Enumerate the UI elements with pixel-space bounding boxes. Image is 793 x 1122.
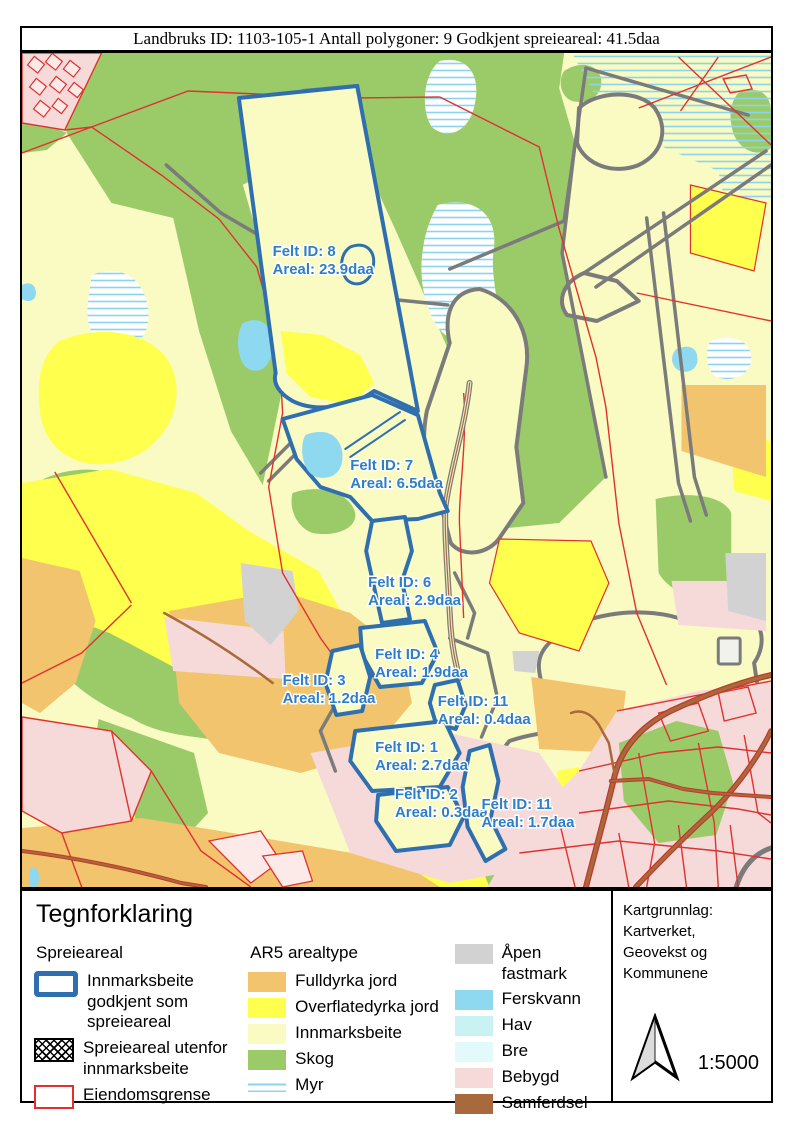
- legend-item-innmarksbeite: Innmarksbeite: [248, 1023, 440, 1044]
- legend-item-label: Eiendomsgrense: [83, 1085, 211, 1106]
- legend-title: Tegnforklaring: [36, 900, 599, 929]
- map-title-bar: Landbruks ID: 1103-105-1 Antall polygone…: [20, 26, 773, 52]
- north-arrow-icon: [629, 1013, 681, 1083]
- legend-item-label: Skog: [295, 1049, 334, 1070]
- legend-column-spreieareal: Spreieareal Innmarksbeite godkjent som s…: [34, 943, 234, 1119]
- legend-item-label: Hav: [502, 1015, 532, 1036]
- legend-item-label: Myr: [295, 1075, 323, 1096]
- legend-item-myr: Myr: [248, 1075, 440, 1096]
- crosshatch-swatch: [34, 1038, 74, 1062]
- map-svg: Felt ID: 8Areal: 23.9daa Felt ID: 7Areal…: [22, 53, 771, 887]
- legend-item-label: Bre: [502, 1041, 528, 1062]
- info-box: Kartgrunnlag: Kartverket, Geovekst og Ko…: [611, 889, 773, 1103]
- color-swatch: [455, 990, 493, 1010]
- legend-item-label: Ferskvann: [502, 989, 581, 1010]
- legend-item-utenfor: Spreieareal utenfor innmarksbeite: [34, 1038, 234, 1079]
- page: Landbruks ID: 1103-105-1 Antall polygone…: [0, 0, 793, 1122]
- legend-item-label: Åpen fastmark: [502, 943, 599, 984]
- map-canvas[interactable]: Felt ID: 8Areal: 23.9daa Felt ID: 7Areal…: [20, 51, 773, 889]
- legend-header-spreieareal: Spreieareal: [36, 943, 234, 963]
- legend-header-ar5: AR5 arealtype: [250, 943, 440, 963]
- color-swatch: [248, 1024, 286, 1044]
- color-swatch: [455, 1016, 493, 1036]
- legend-item-fastmark: Åpen fastmark: [455, 943, 599, 984]
- legend-item-overflatedyrka: Overflatedyrka jord: [248, 997, 440, 1018]
- legend-item-label: Fulldyrka jord: [295, 971, 397, 992]
- legend-item-hav: Hav: [455, 1015, 599, 1036]
- color-swatch: [248, 998, 286, 1018]
- legend-item-eiendomsgrense: Eiendomsgrense: [34, 1085, 234, 1109]
- legend-item-bre: Bre: [455, 1041, 599, 1062]
- color-swatch: [455, 1094, 493, 1114]
- color-swatch: [248, 1050, 286, 1070]
- legend-item-label: Innmarksbeite godkjent som spreieareal: [87, 971, 234, 1033]
- legend-item-label: Innmarksbeite: [295, 1023, 402, 1044]
- red-outline-swatch: [34, 1085, 74, 1109]
- color-swatch: [455, 1042, 493, 1062]
- myr-lines-swatch: [248, 1076, 286, 1096]
- legend-item-label: Overflatedyrka jord: [295, 997, 439, 1018]
- legend-item-samferdsel: Samferdsel: [455, 1093, 599, 1114]
- legend-item-fulldyrka: Fulldyrka jord: [248, 971, 440, 992]
- legend-item-label: Samferdsel: [502, 1093, 588, 1114]
- legend-item-label: Spreieareal utenfor innmarksbeite: [83, 1038, 234, 1079]
- legend: Tegnforklaring Spreieareal Innmarksbeite…: [20, 889, 613, 1103]
- attribution-text: Kartgrunnlag: Kartverket, Geovekst og Ko…: [623, 900, 761, 984]
- legend-item-bebygd: Bebygd: [455, 1067, 599, 1088]
- legend-item-ferskvann: Ferskvann: [455, 989, 599, 1010]
- blue-outline-swatch: [34, 971, 78, 997]
- scale-text: 1:5000: [698, 1052, 759, 1075]
- legend-item-label: Bebygd: [502, 1067, 560, 1088]
- color-swatch: [248, 972, 286, 992]
- legend-column-ar5: AR5 arealtype Fulldyrka jord Overflatedy…: [248, 943, 440, 1119]
- legend-item-godkjent: Innmarksbeite godkjent som spreieareal: [34, 971, 234, 1033]
- map-title-text: Landbruks ID: 1103-105-1 Antall polygone…: [133, 29, 660, 49]
- legend-column-ar5b: Åpen fastmark Ferskvann Hav Bre Bebygd: [455, 943, 599, 1119]
- color-swatch: [455, 1068, 493, 1088]
- legend-item-skog: Skog: [248, 1049, 440, 1070]
- color-swatch: [455, 944, 493, 964]
